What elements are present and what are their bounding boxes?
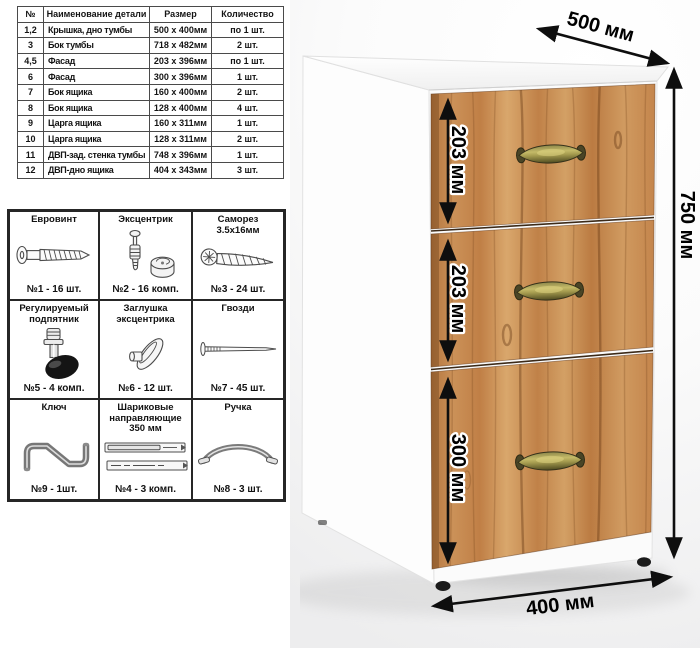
part-size: 160 x 400мм (150, 84, 212, 100)
part-row: 4,5 Фасад 203 x 396мм по 1 шт. (18, 53, 284, 69)
drawer2-dimension-label: 203 мм (447, 265, 469, 334)
hardware-cell-klyuch: Ключ №9 - 1шт. (9, 399, 99, 500)
part-qty: 1 шт. (212, 69, 284, 85)
part-num: 9 (18, 116, 44, 132)
part-size: 160 x 311мм (150, 116, 212, 132)
part-num: 7 (18, 84, 44, 100)
adjustable-foot-icon (20, 327, 88, 381)
hardware-cell-ruchka: Ручка №8 - 3 шт. (192, 399, 284, 500)
part-qty: 1 шт. (212, 147, 284, 163)
part-qty: 3 шт. (212, 162, 284, 178)
height-dimension-label: 750 мм (676, 191, 698, 260)
col-header-size: Размер (150, 7, 212, 23)
part-name: Бок тумбы (44, 38, 150, 54)
euro-screw-icon (15, 242, 93, 268)
part-qty: 2 шт. (212, 38, 284, 54)
hardware-count: №6 - 12 шт. (118, 383, 173, 394)
col-header-name: Наименование детали (44, 7, 150, 23)
hardware-count: №4 - 3 комп. (115, 484, 176, 495)
part-name: ДВП-зад. стенка тумбы (44, 147, 150, 163)
part-size: 300 x 396мм (150, 69, 212, 85)
assembly-instruction-sheet: 500 мм 750 мм 400 мм 203 мм 203 мм 300 м… (0, 0, 700, 648)
part-qty: 4 шт. (212, 100, 284, 116)
cabinet-side-face (302, 56, 434, 584)
part-name: Бок ящика (44, 84, 150, 100)
hardware-count: №2 - 16 комп. (112, 284, 179, 295)
hardware-cell-napravlyayushchie: Шариковые направляющие 350 мм №4 - 3 ком… (99, 399, 192, 500)
part-qty: 2 шт. (212, 131, 284, 147)
hardware-title: Ручка (224, 403, 251, 414)
cabinet-illustration: 500 мм 750 мм 400 мм 203 мм 203 мм 300 м… (300, 0, 700, 648)
hex-key-icon (15, 424, 93, 474)
hardware-cell-podpyatnik: Регулируемый подпятник №5 - (9, 300, 99, 399)
cam-lock-icon (110, 229, 182, 281)
hardware-cell-zaglushka: Заглушка эксцентрика №6 - 12 шт. (99, 300, 192, 399)
part-num: 8 (18, 100, 44, 116)
part-row: 12 ДВП-дно ящика 404 x 343мм 3 шт. (18, 162, 284, 178)
part-size: 718 x 482мм (150, 38, 212, 54)
hardware-title: Гвозди (221, 304, 254, 315)
part-num: 10 (18, 131, 44, 147)
hardware-count: №9 - 1шт. (31, 484, 77, 495)
parts-table-header-row: № Наименование детали Размер Количество (18, 7, 284, 23)
part-name: Царга ящика (44, 116, 150, 132)
col-header-num: № (18, 7, 44, 23)
part-name: Фасад (44, 53, 150, 69)
hardware-cell-samorez: Саморез 3.5х16мм №3 - 24 шт. (192, 211, 284, 300)
part-name: Царга ящика (44, 131, 150, 147)
part-size: 404 x 343мм (150, 162, 212, 178)
part-row: 3 Бок тумбы 718 x 482мм 2 шт. (18, 38, 284, 54)
part-row: 1,2 Крышка, дно тумбы 500 x 400мм по 1 ш… (18, 22, 284, 38)
part-size: 748 x 396мм (150, 147, 212, 163)
part-num: 3 (18, 38, 44, 54)
part-qty: по 1 шт. (212, 22, 284, 38)
drawer-slides-icon (103, 439, 189, 479)
hardware-title: Регулируемый подпятник (12, 304, 96, 325)
part-row: 7 Бок ящика 160 x 400мм 2 шт. (18, 84, 284, 100)
part-num: 6 (18, 69, 44, 85)
hardware-title: Евровинт (31, 215, 77, 226)
hardware-grid: Евровинт №1 - 16 шт. Эксцентрик (7, 209, 286, 502)
hardware-title: Шариковые направляющие 350 мм (102, 403, 189, 435)
bow-handle-icon (197, 431, 279, 467)
part-qty: по 1 шт. (212, 53, 284, 69)
part-name: Бок ящика (44, 100, 150, 116)
hardware-count: №1 - 16 шт. (27, 284, 82, 295)
front-right-foot (637, 557, 651, 567)
self-tapping-screw-icon (199, 244, 277, 276)
hardware-title: Саморез 3.5х16мм (195, 215, 281, 236)
hardware-count: №3 - 24 шт. (211, 284, 266, 295)
part-size: 128 x 400мм (150, 100, 212, 116)
hardware-count: №8 - 3 шт. (213, 484, 262, 495)
part-num: 1,2 (18, 22, 44, 38)
part-row: 10 Царга ящика 128 x 311мм 2 шт. (18, 131, 284, 147)
part-row: 9 Царга ящика 160 x 311мм 1 шт. (18, 116, 284, 132)
part-size: 128 x 311мм (150, 131, 212, 147)
part-size: 203 x 396мм (150, 53, 212, 69)
parts-table: № Наименование детали Размер Количество … (17, 6, 284, 179)
part-size: 500 x 400мм (150, 22, 212, 38)
part-name: Фасад (44, 69, 150, 85)
hardware-count: №7 - 45 шт. (211, 383, 266, 394)
hardware-cell-excentric: Эксцентрик (99, 211, 192, 300)
hardware-title: Ключ (41, 403, 66, 414)
part-row: 11 ДВП-зад. стенка тумбы 748 x 396мм 1 ш… (18, 147, 284, 163)
hardware-title: Заглушка эксцентрика (102, 304, 189, 325)
part-num: 12 (18, 162, 44, 178)
width-dimension-label: 500 мм (565, 8, 637, 47)
col-header-qty: Количество (212, 7, 284, 23)
hardware-cell-gvozdi: Гвозди №7 - 45 шт. (192, 300, 284, 399)
front-left-foot (436, 581, 451, 591)
hardware-cell-eurovint: Евровинт №1 - 16 шт. (9, 211, 99, 300)
part-name: Крышка, дно тумбы (44, 22, 150, 38)
hardware-count: №5 - 4 комп. (23, 383, 84, 394)
part-name: ДВП-дно ящика (44, 162, 150, 178)
part-row: 6 Фасад 300 x 396мм 1 шт. (18, 69, 284, 85)
rear-foot (318, 520, 327, 525)
part-qty: 2 шт. (212, 84, 284, 100)
hardware-title: Эксцентрик (118, 215, 173, 226)
part-num: 11 (18, 147, 44, 163)
cam-cover-icon (119, 328, 173, 380)
part-num: 4,5 (18, 53, 44, 69)
drawer3-dimension-label: 300 мм (447, 434, 469, 503)
drawer1-dimension-label: 203 мм (447, 126, 469, 195)
nails-icon (198, 340, 278, 358)
part-qty: 1 шт. (212, 116, 284, 132)
part-row: 8 Бок ящика 128 x 400мм 4 шт. (18, 100, 284, 116)
